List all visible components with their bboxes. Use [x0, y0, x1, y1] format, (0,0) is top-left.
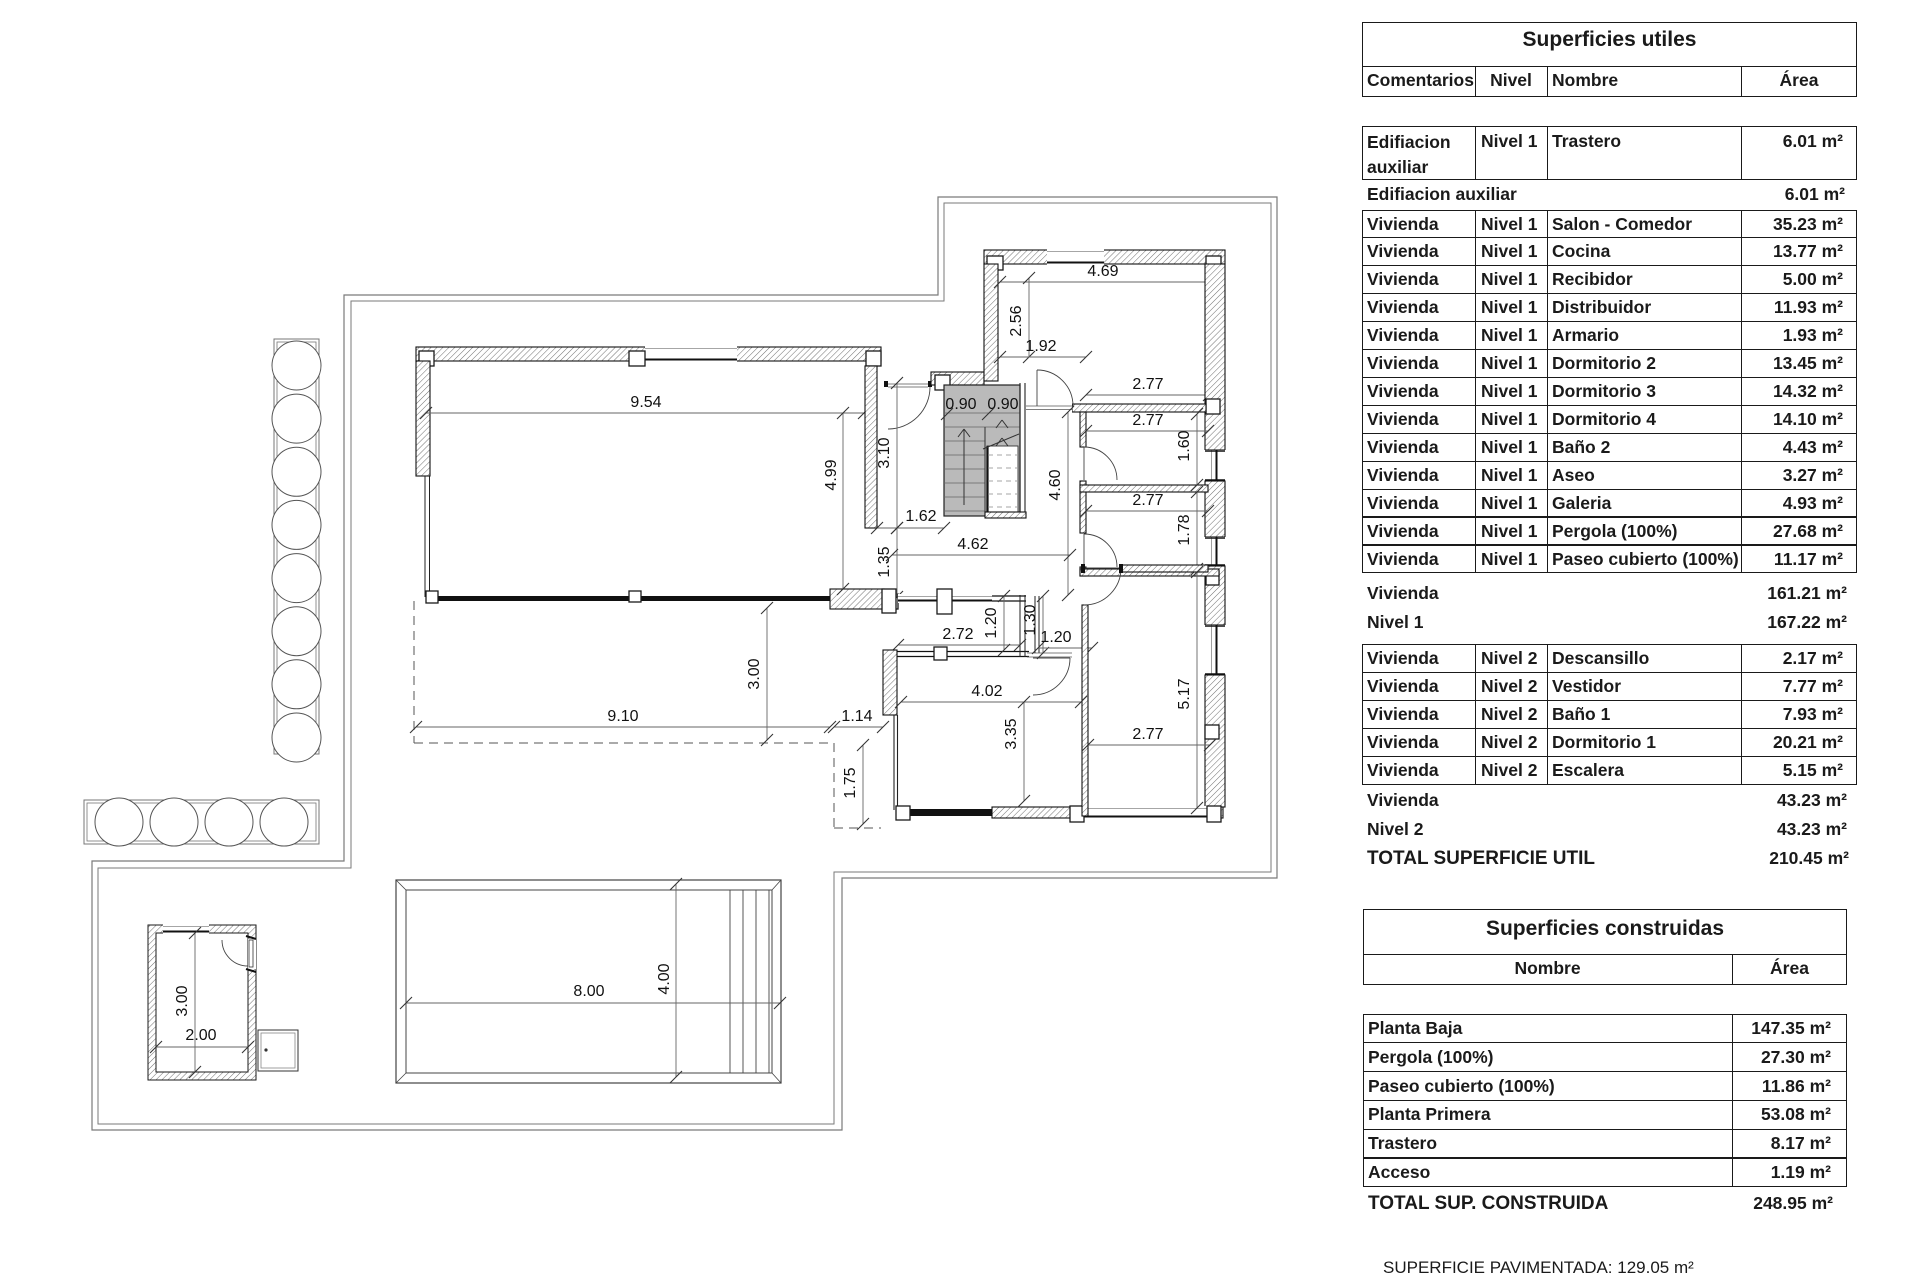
- svg-text:1.30: 1.30: [1022, 604, 1039, 635]
- svg-text:3.00: 3.00: [174, 985, 191, 1016]
- svg-text:3.10: 3.10: [876, 437, 893, 468]
- svg-text:4.02: 4.02: [971, 683, 1002, 700]
- svg-text:9.10: 9.10: [607, 708, 638, 725]
- svg-text:1.75: 1.75: [842, 767, 859, 798]
- svg-text:4.60: 4.60: [1047, 469, 1064, 500]
- svg-text:1.62: 1.62: [905, 508, 936, 525]
- svg-text:2.72: 2.72: [942, 626, 973, 643]
- svg-text:2.77: 2.77: [1132, 492, 1163, 509]
- svg-text:8.00: 8.00: [573, 983, 604, 1000]
- svg-text:2.77: 2.77: [1132, 412, 1163, 429]
- svg-text:3.00: 3.00: [746, 658, 763, 689]
- svg-text:1.35: 1.35: [876, 546, 893, 577]
- svg-text:1.20: 1.20: [1040, 629, 1071, 646]
- svg-text:2.00: 2.00: [185, 1027, 216, 1044]
- svg-text:4.62: 4.62: [957, 536, 988, 553]
- svg-text:4.00: 4.00: [656, 963, 673, 994]
- svg-text:1.78: 1.78: [1176, 514, 1193, 545]
- svg-text:2.56: 2.56: [1008, 305, 1025, 336]
- svg-text:2.77: 2.77: [1132, 376, 1163, 393]
- svg-text:9.54: 9.54: [630, 394, 661, 411]
- svg-text:1.92: 1.92: [1025, 338, 1056, 355]
- svg-text:1.20: 1.20: [983, 607, 1000, 638]
- svg-text:4.69: 4.69: [1087, 263, 1118, 280]
- svg-text:1.14: 1.14: [841, 708, 872, 725]
- svg-text:4.99: 4.99: [823, 459, 840, 490]
- svg-text:2.77: 2.77: [1132, 726, 1163, 743]
- svg-text:5.17: 5.17: [1176, 678, 1193, 709]
- svg-text:1.60: 1.60: [1176, 430, 1193, 461]
- svg-text:3.35: 3.35: [1003, 718, 1020, 749]
